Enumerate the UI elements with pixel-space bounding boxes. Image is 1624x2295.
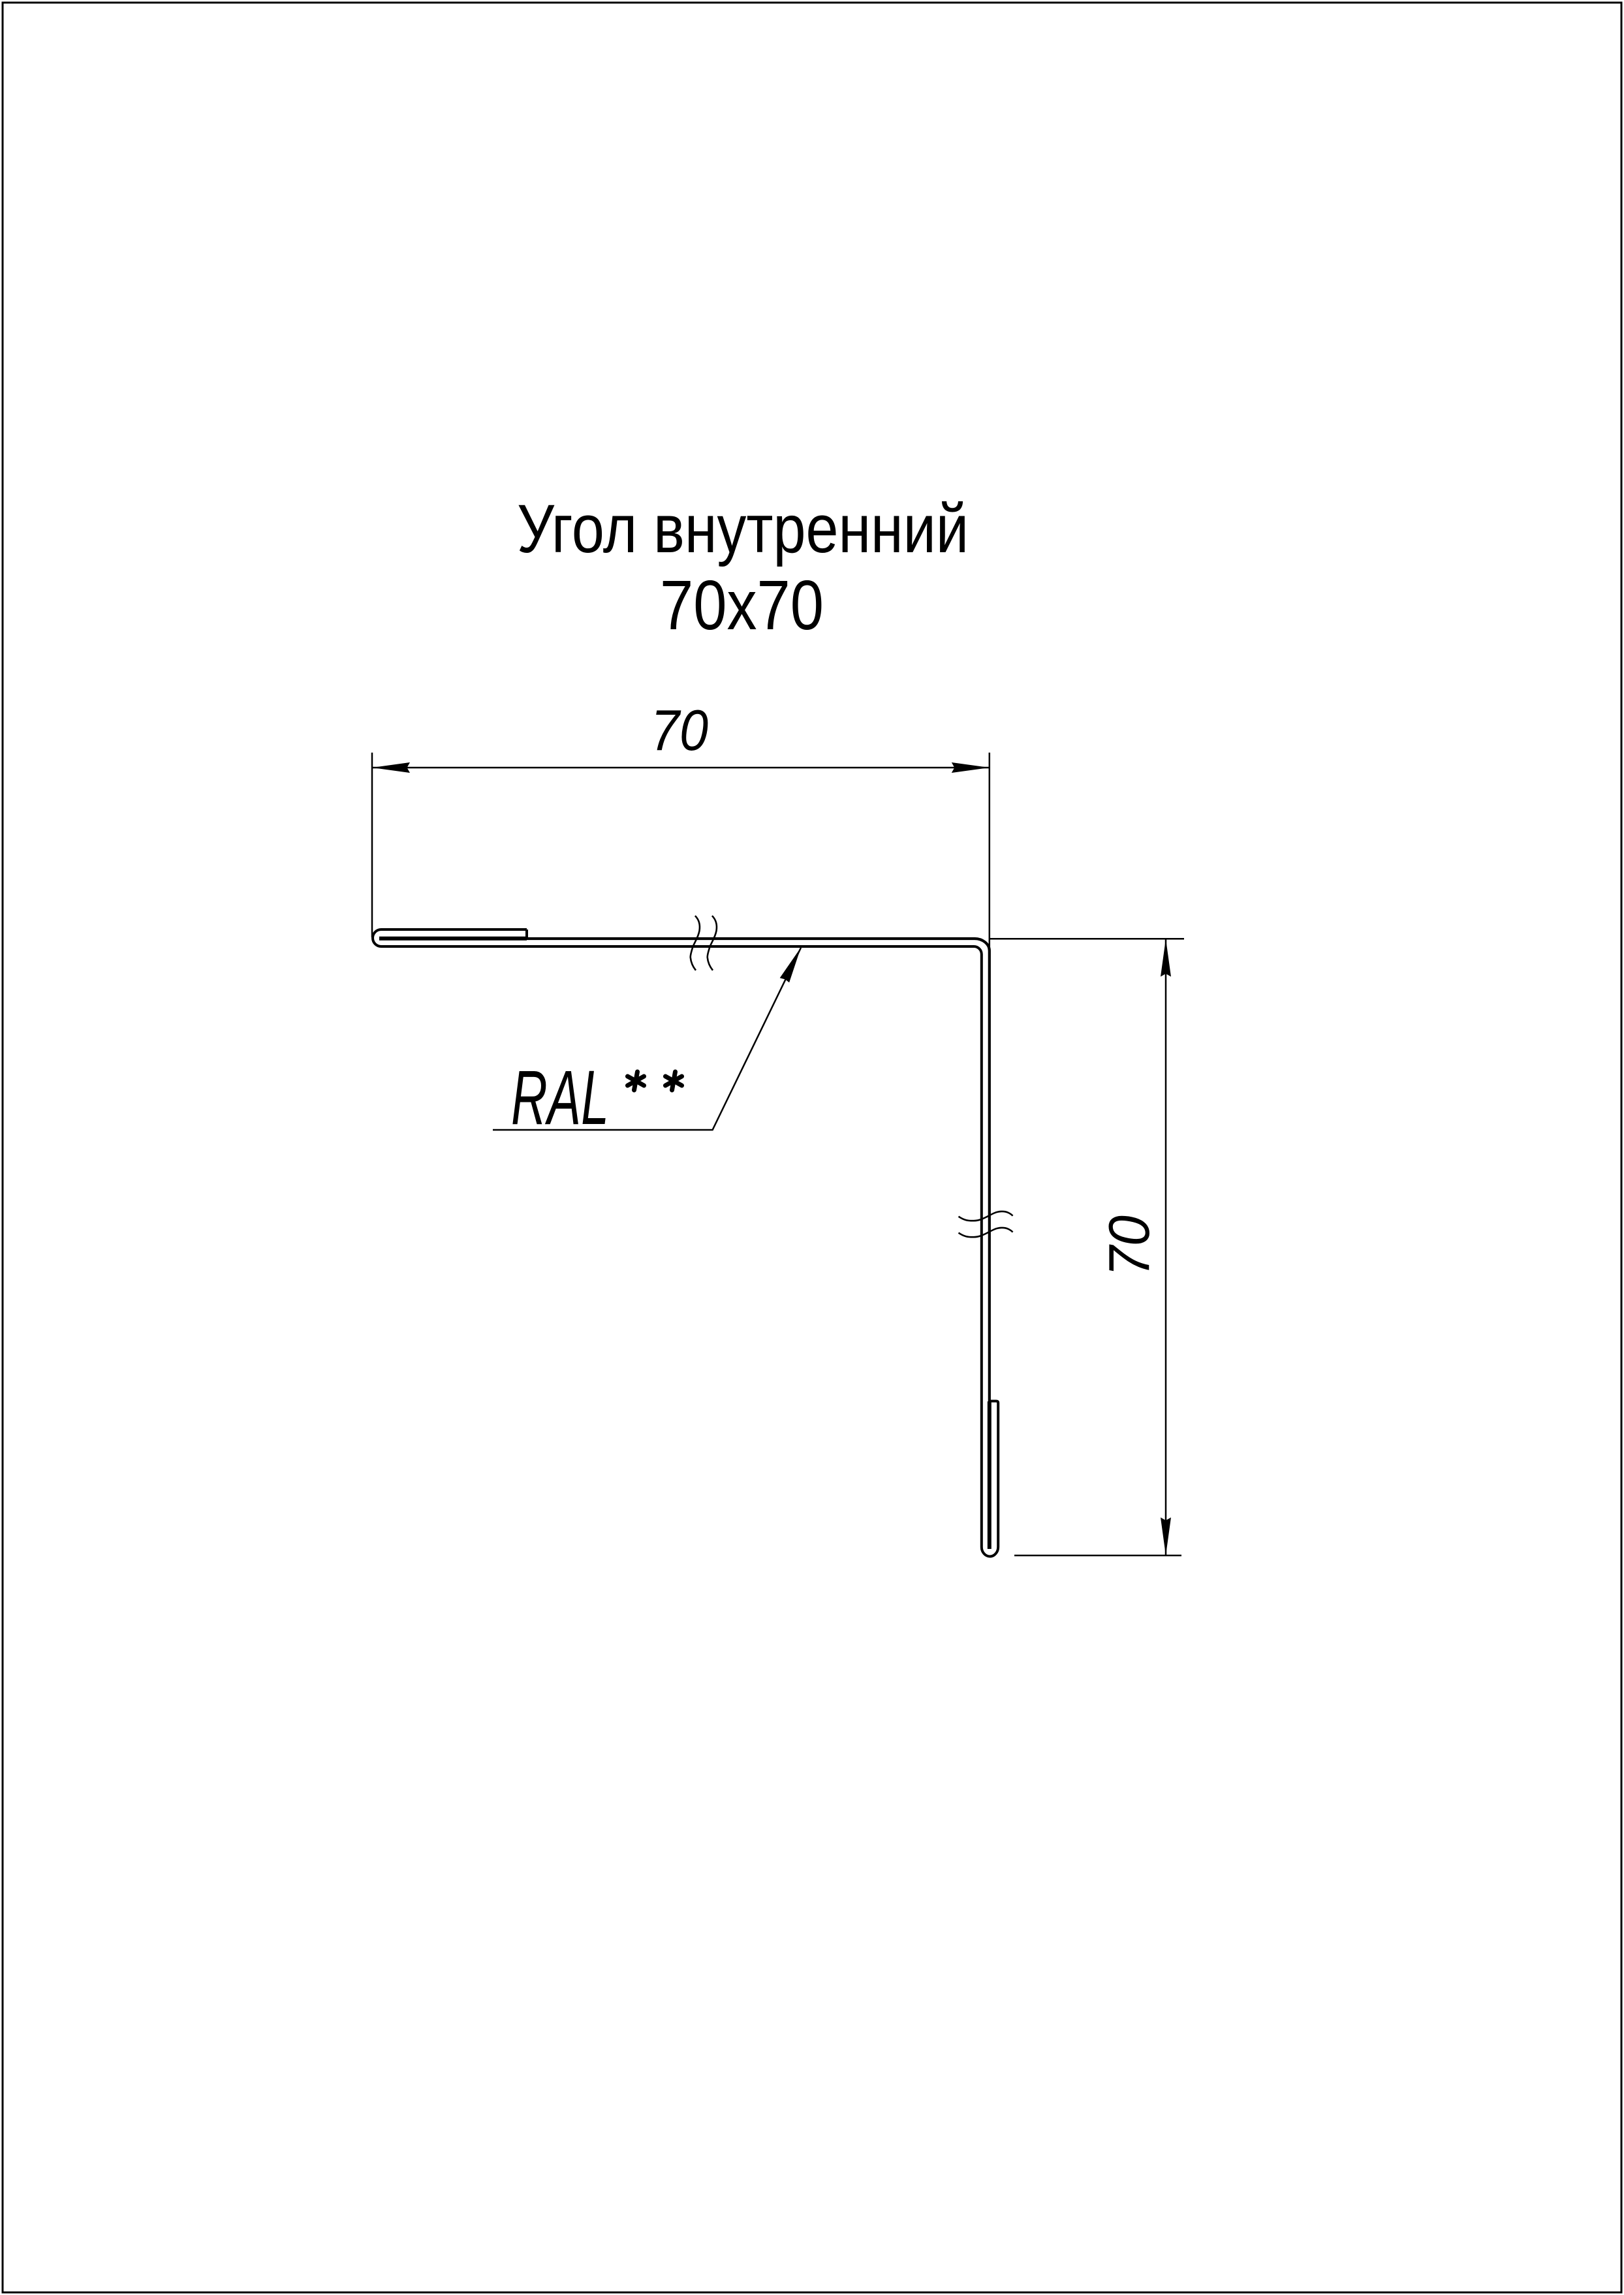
svg-text:70x70: 70x70 xyxy=(660,565,824,644)
svg-text:Угол внутренний: Угол внутренний xyxy=(517,491,969,567)
svg-text:RAL: RAL xyxy=(511,1055,609,1141)
svg-text:70: 70 xyxy=(651,698,708,762)
svg-text:70: 70 xyxy=(1097,1215,1161,1277)
